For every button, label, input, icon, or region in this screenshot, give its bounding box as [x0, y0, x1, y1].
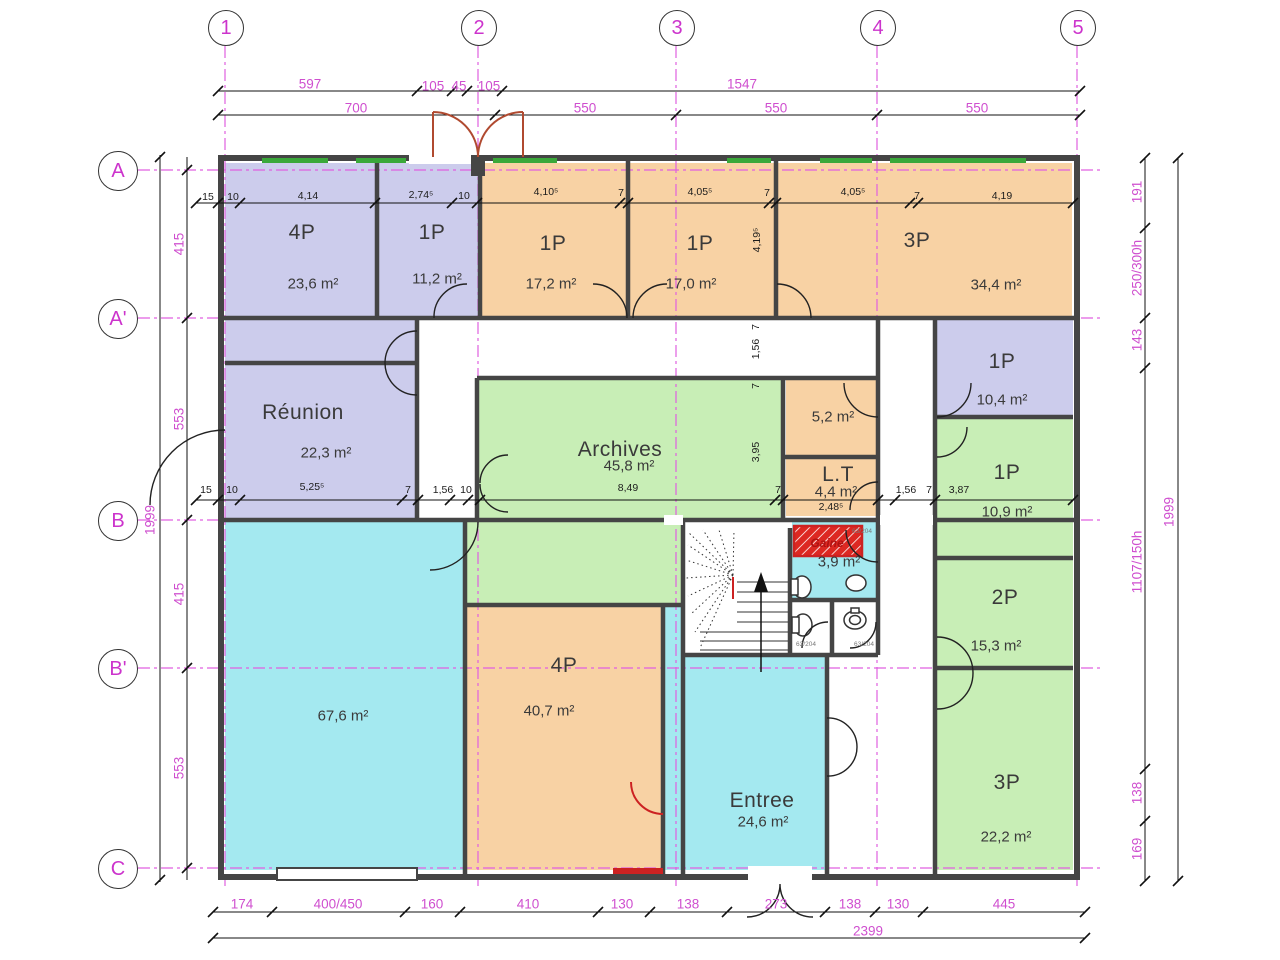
dim-label-18-445: 445	[993, 897, 1016, 911]
room-entree-area: 24,6 m²	[738, 814, 789, 831]
dim-label-47-7: 7	[751, 383, 762, 389]
grid-column-3: 3	[659, 10, 695, 46]
dim-label-35-274: 2,74⁵	[409, 190, 434, 201]
dim-label-34-414: 4,14	[298, 191, 318, 202]
room-wc-area: 3,9 m²	[818, 554, 861, 571]
room-room-lt-area: 4,4 m²	[815, 484, 858, 501]
dim-label-39-405: 4,05⁵	[688, 187, 713, 198]
dim-label-27-143: 143	[1130, 329, 1144, 352]
dim-label-4-1547: 1547	[727, 77, 757, 91]
grid-column-4: 4	[860, 10, 896, 46]
dim-label-14-138: 138	[677, 897, 700, 911]
grid-column-1: 1	[208, 10, 244, 46]
dim-label-7-550: 550	[765, 101, 788, 115]
room-1p-c-area: 17,0 m²	[666, 276, 717, 293]
dim-label-22-415: 415	[172, 583, 186, 606]
room-1p-d-area: 10,4 m²	[977, 392, 1028, 409]
grid-row-label-C: C	[111, 858, 125, 881]
dim-label-48-395: 3,95	[751, 442, 762, 462]
room-reunion-area: 22,3 m²	[301, 445, 352, 462]
room-4p-a-label: 4P	[289, 221, 316, 245]
sink-icon	[846, 575, 866, 591]
grid-row-label-B': B'	[109, 658, 126, 681]
dim-label-42-7: 7	[914, 191, 920, 202]
dim-label-21-553: 553	[172, 408, 186, 431]
dim-label-3-105: 105	[478, 79, 501, 93]
dim-label-40-7: 7	[764, 188, 770, 199]
grid-row-label-A: A	[111, 160, 124, 183]
room-1p-e-area: 10,9 m²	[982, 504, 1033, 521]
room-1p-e-label: 1P	[994, 461, 1021, 485]
dim-label-44-419: 4,19⁵	[752, 228, 763, 253]
dim-label-52-7: 7	[405, 485, 411, 496]
dim-label-49-15: 15	[200, 485, 212, 496]
floor-plan: 4P23,6 m²1P11,2 m²1P17,2 m²1P17,0 m²3P34…	[0, 0, 1280, 960]
dim-label-55-849: 8,49	[618, 483, 638, 494]
dim-label-2-45: 45	[451, 79, 466, 93]
dim-label-9-174: 174	[231, 897, 254, 911]
room-grande-salle-area: 67,6 m²	[318, 708, 369, 725]
dim-label-53-156: 1,56	[433, 485, 453, 496]
room-1p-a-area: 11,2 m²	[412, 271, 462, 288]
dim-label-28-1107150h: 1107/150h	[1130, 531, 1144, 594]
dim-label-26-250300h: 250/300h	[1130, 240, 1144, 296]
grid-column-label-5: 5	[1072, 17, 1083, 40]
room-3p-a-label: 3P	[904, 229, 931, 253]
room-1p-a-label: 1P	[419, 221, 446, 245]
grid-row-B': B'	[98, 649, 138, 689]
dim-label-23-553: 553	[172, 757, 186, 780]
dim-label-13-130: 130	[611, 897, 634, 911]
dim-label-61-63204: 63/204	[852, 529, 872, 536]
dim-label-8-550: 550	[966, 101, 989, 115]
grid-column-2: 2	[461, 10, 497, 46]
dim-label-62-63204: 63/204	[796, 642, 816, 649]
dim-label-31-1999: 1999	[1162, 497, 1176, 527]
dim-label-15-273: 273	[765, 897, 788, 911]
dim-label-1-105: 105	[422, 79, 445, 93]
grid-column-label-2: 2	[473, 17, 484, 40]
dim-label-38-7: 7	[618, 188, 624, 199]
dim-label-59-387: 3,87	[949, 485, 969, 496]
dim-label-12-410: 410	[517, 897, 540, 911]
dim-label-0-597: 597	[299, 77, 322, 91]
bottom-recess	[277, 868, 417, 880]
dim-label-33-10: 10	[227, 192, 239, 203]
room-entree-label: Entree	[730, 789, 795, 813]
room-room-5-2-area: 5,2 m²	[812, 409, 855, 426]
dim-label-60-248: 2,48⁵	[819, 502, 844, 513]
dim-label-11-160: 160	[421, 897, 444, 911]
room-1p-b-area: 17,2 m²	[526, 276, 577, 293]
dim-label-5-700: 700	[345, 101, 368, 115]
dim-label-25-191: 191	[1130, 181, 1144, 204]
dim-label-20-415: 415	[172, 233, 186, 256]
dim-label-64-Gaine: Gaine	[810, 537, 843, 549]
grid-column-label-4: 4	[872, 17, 883, 40]
grid-column-label-1: 1	[220, 17, 231, 40]
dim-label-10-400450: 400/450	[314, 897, 363, 911]
dim-label-56-7: 7	[775, 485, 781, 496]
dim-label-45-156: 1,56	[751, 339, 762, 359]
room-1p-d-label: 1P	[989, 350, 1016, 374]
grid-row-A: A	[98, 151, 138, 191]
floor-plan-drawing	[0, 0, 1280, 960]
grid-row-A': A'	[98, 299, 138, 339]
room-3p-a-area: 34,4 m²	[971, 277, 1022, 294]
dim-label-6-550: 550	[574, 101, 597, 115]
room-4p-a-area: 23,6 m²	[288, 276, 339, 293]
dim-label-50-10: 10	[226, 485, 238, 496]
dim-label-36-10: 10	[458, 191, 470, 202]
dim-label-19-2399: 2399	[853, 924, 883, 938]
dim-label-30-169: 169	[1130, 838, 1144, 861]
room-2p-area: 15,3 m²	[971, 638, 1022, 655]
grid-row-B: B	[98, 501, 138, 541]
grid-column-5: 5	[1060, 10, 1096, 46]
room-3p-b-area: 22,2 m²	[981, 829, 1032, 846]
room-4p-b-area: 40,7 m²	[524, 703, 575, 720]
walls	[221, 150, 1077, 882]
dim-label-51-525: 5,25⁵	[300, 482, 325, 493]
room-reunion-label: Réunion	[262, 401, 344, 425]
grid-row-label-B: B	[111, 510, 124, 533]
dim-label-41-405: 4,05⁵	[841, 187, 866, 198]
dim-label-43-419: 4,19	[992, 191, 1012, 202]
dim-label-29-138: 138	[1130, 782, 1144, 805]
dim-label-63-63204: 63/204	[854, 642, 874, 649]
dim-label-54-10: 10	[460, 485, 472, 496]
dim-label-37-410: 4,10⁵	[534, 187, 559, 198]
room-2p-label: 2P	[992, 586, 1019, 610]
main-entrance-opening	[748, 866, 812, 882]
dim-label-17-130: 130	[887, 897, 910, 911]
dim-label-46-7: 7	[751, 324, 762, 330]
dim-label-16-138: 138	[839, 897, 862, 911]
room-archives-area: 45,8 m²	[604, 458, 655, 475]
dim-label-57-156: 1,56	[896, 485, 916, 496]
sanitary-fixtures	[791, 575, 866, 636]
dim-label-32-15: 15	[202, 192, 214, 203]
room-4p-b-label: 4P	[551, 654, 578, 678]
room-1p-b-label: 1P	[540, 232, 567, 256]
top-door-opening	[409, 150, 471, 164]
dim-label-58-7: 7	[926, 485, 932, 496]
staircase	[686, 530, 788, 672]
grid-column-label-3: 3	[671, 17, 682, 40]
room-1p-c-label: 1P	[687, 232, 714, 256]
room-3p-b-label: 3P	[994, 771, 1021, 795]
grid-row-C: C	[98, 849, 138, 889]
dim-label-24-1999: 1999	[143, 505, 157, 535]
grid-row-label-A': A'	[109, 308, 126, 331]
